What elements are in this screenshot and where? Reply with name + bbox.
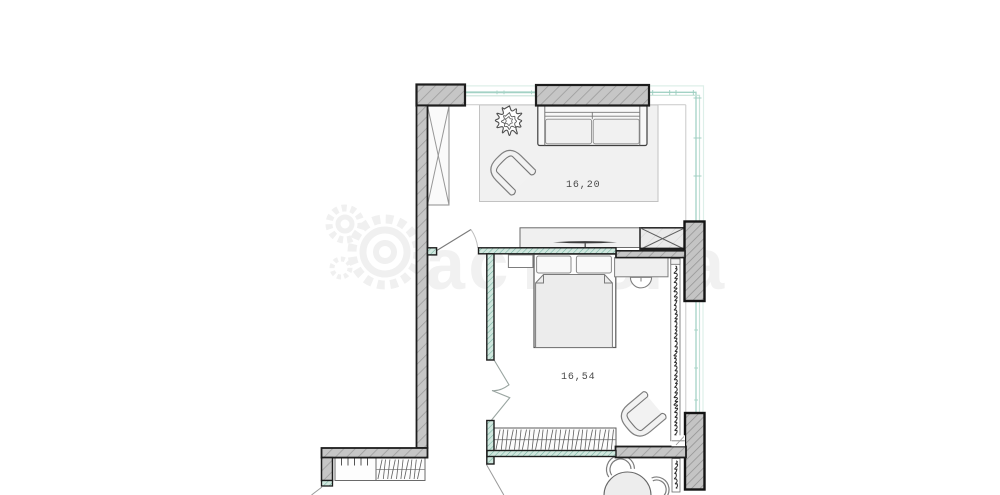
svg-text:16,20: 16,20	[566, 180, 601, 191]
svg-text:16,54: 16,54	[561, 372, 596, 383]
